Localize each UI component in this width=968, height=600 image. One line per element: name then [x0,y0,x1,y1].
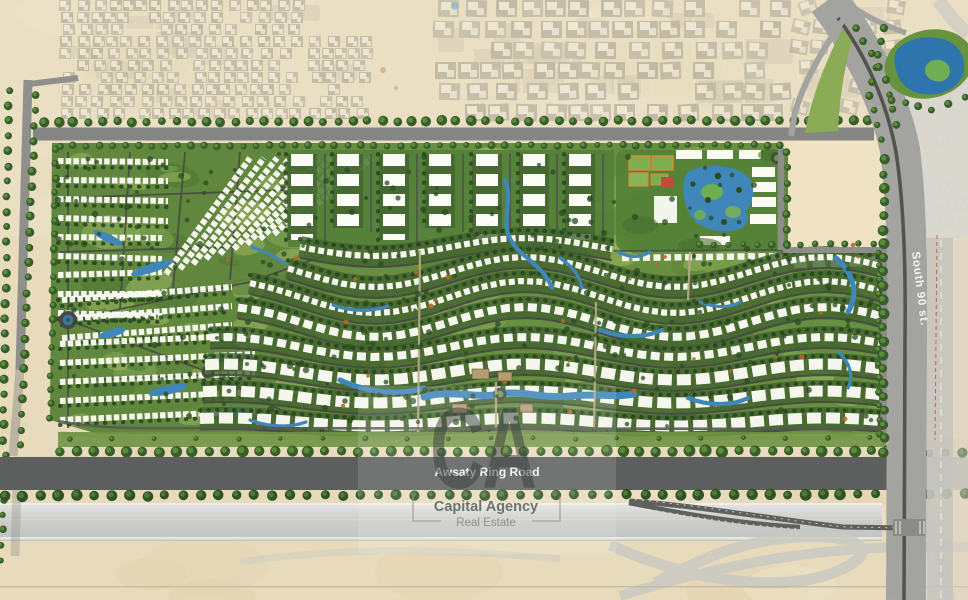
svg-text:CA: CA [430,384,535,513]
svg-text:Capital Agency: Capital Agency [434,499,538,515]
svg-text:Real Estate: Real Estate [456,517,515,529]
